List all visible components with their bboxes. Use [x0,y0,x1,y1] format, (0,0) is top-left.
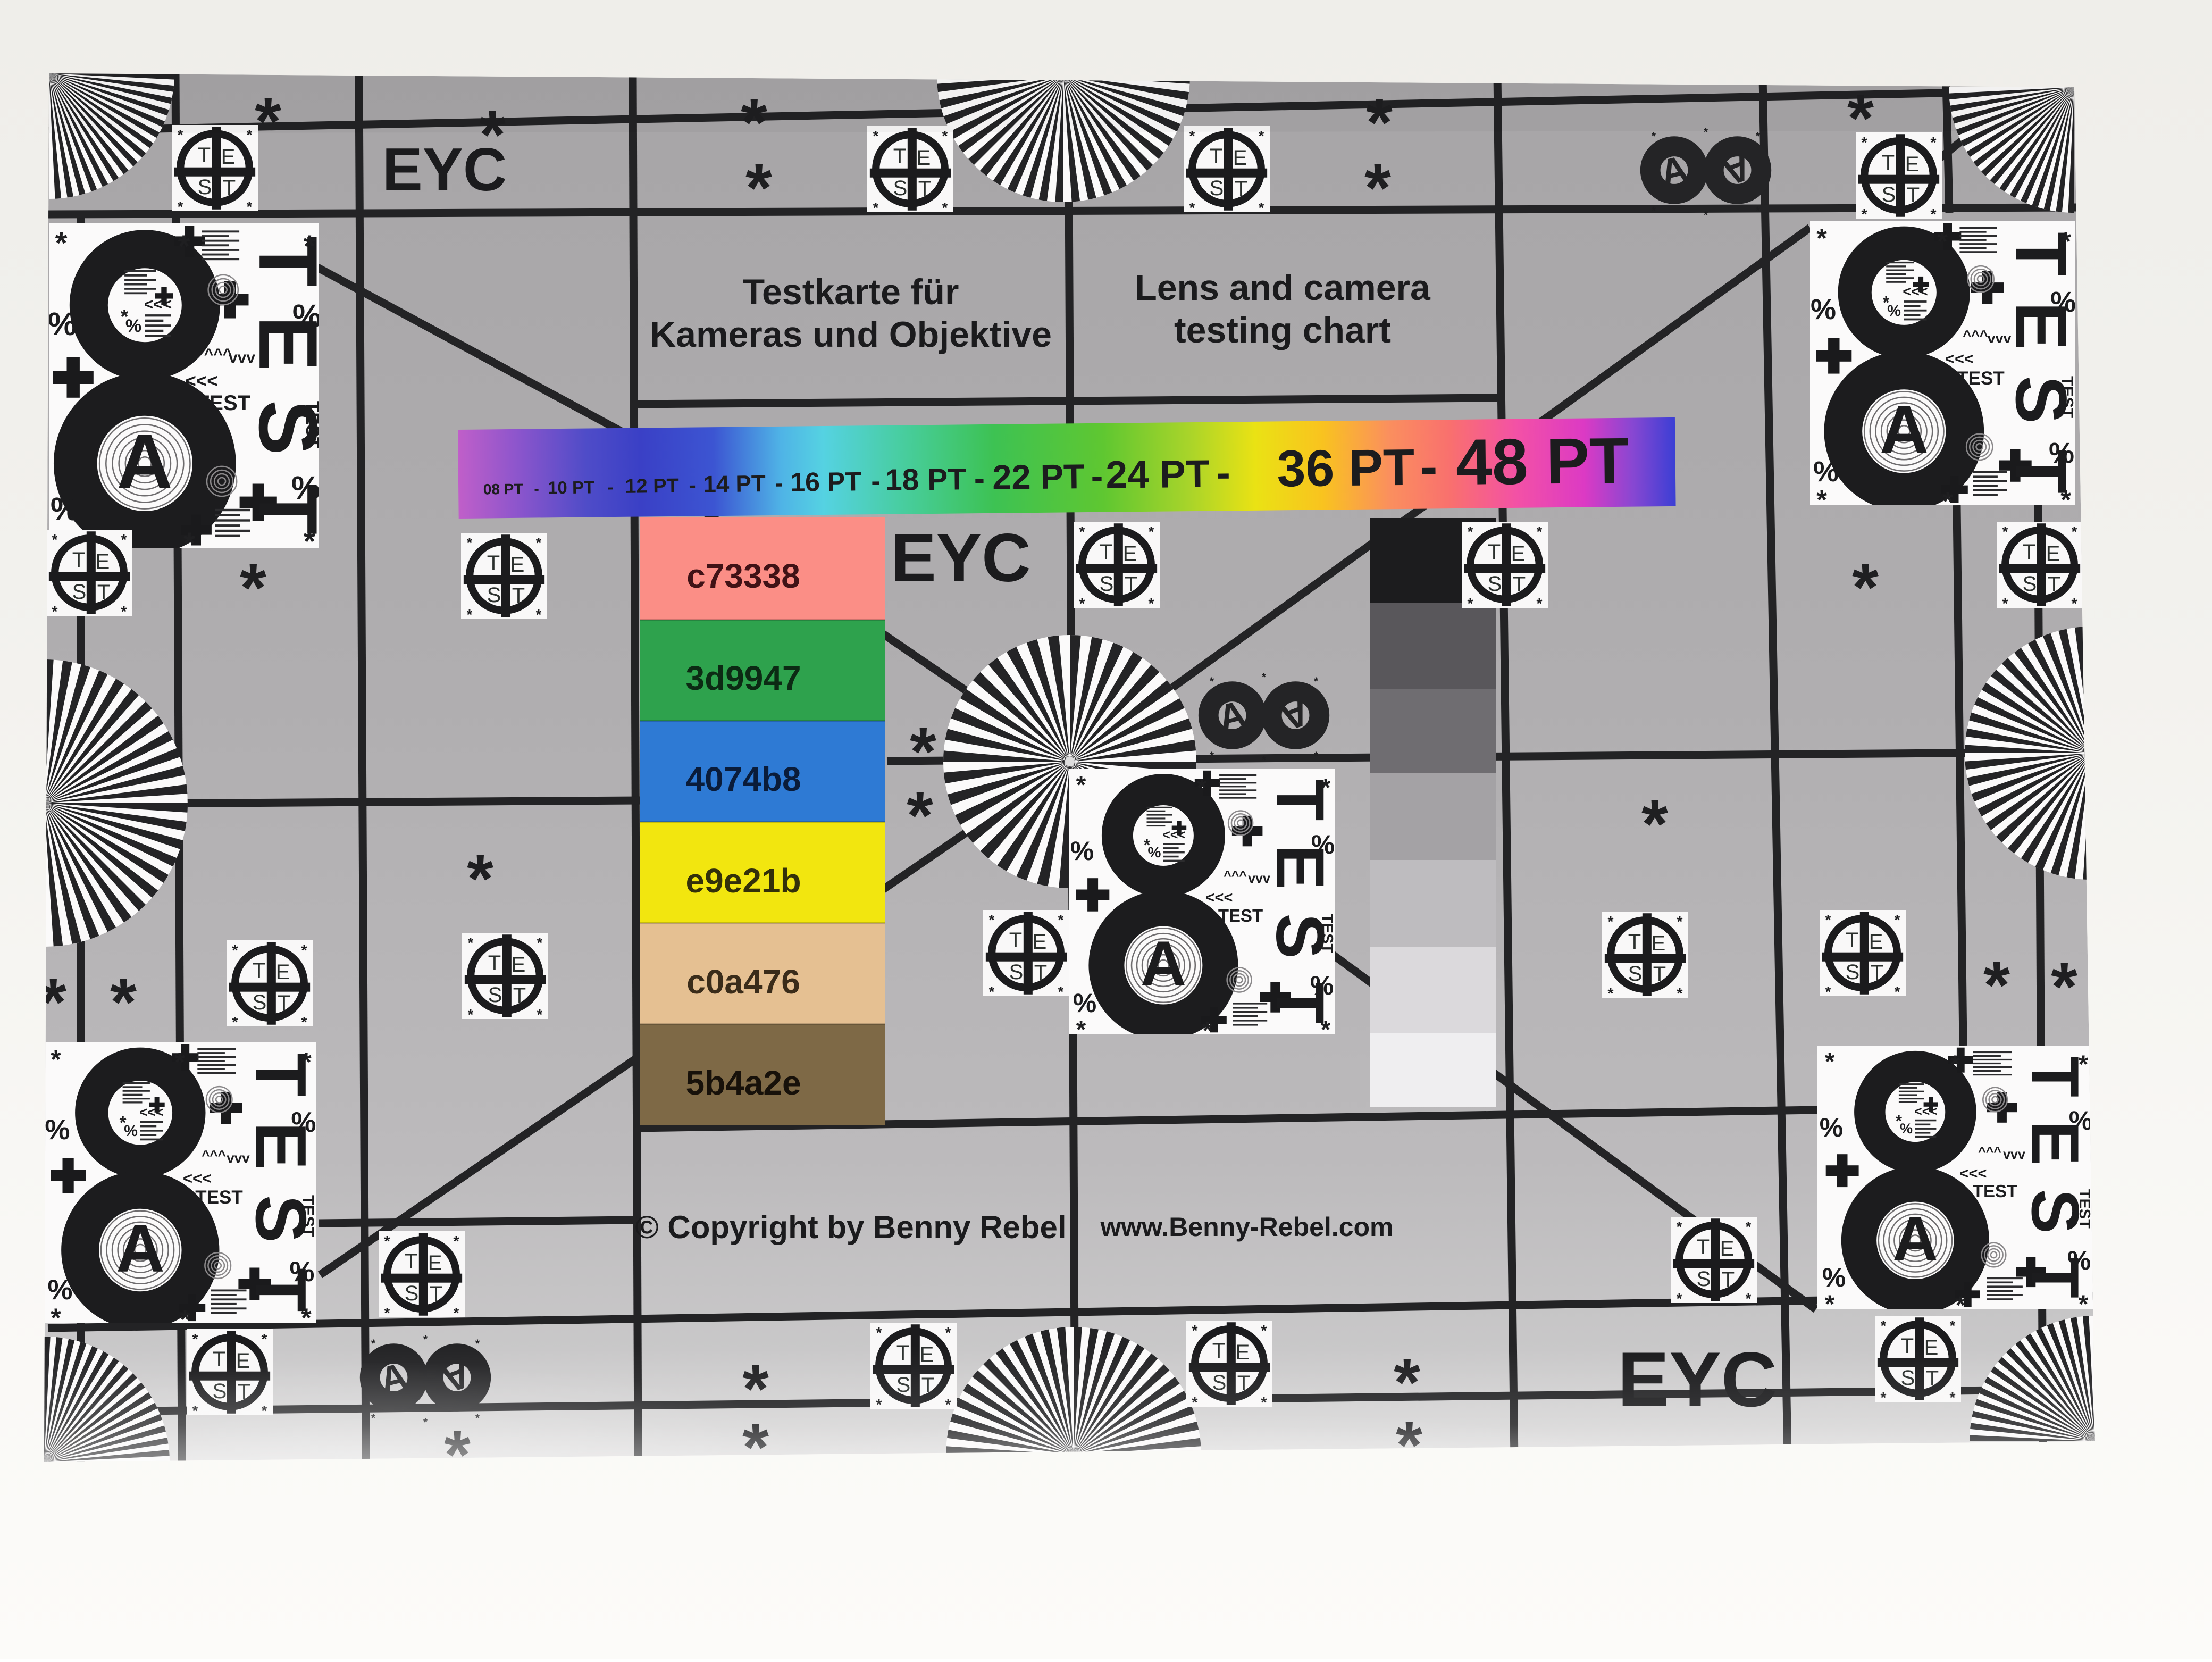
svg-text:*: * [1746,1218,1752,1235]
svg-text:%: % [291,470,320,506]
svg-text:%: % [124,1123,138,1140]
svg-text:S: S [1882,183,1896,206]
svg-text:*: * [1862,206,1867,222]
svg-text:*: * [1262,754,1267,766]
svg-text:*: * [2002,595,2008,612]
svg-text:*: * [1314,675,1319,688]
svg-text:-: - [871,466,881,497]
svg-text:*: * [945,1324,951,1341]
svg-text:S: S [893,177,908,200]
svg-text:*: * [1825,1047,1835,1075]
svg-text:*: * [1149,523,1154,540]
svg-text:E: E [1652,932,1666,955]
svg-text:*: * [1149,595,1154,612]
svg-text:T: T [1034,961,1047,984]
svg-text:*: * [467,534,473,551]
svg-text:*: * [1608,985,1614,1001]
svg-text:10 PT: 10 PT [548,477,594,497]
svg-text:-: - [1091,456,1103,496]
svg-text:*: * [1816,223,1827,253]
svg-text:%: % [2067,1246,2091,1275]
svg-text:*: * [454,1305,459,1321]
svg-text:*: * [174,1047,185,1077]
svg-text:*: * [1537,595,1543,612]
svg-text:© Copyright by Benny Rebel: © Copyright by Benny Rebel [635,1209,1067,1245]
svg-text:12 PT: 12 PT [625,475,679,498]
svg-text:A: A [1141,928,1187,999]
svg-text:*: * [1746,1290,1752,1307]
svg-text:S: S [1488,572,1502,596]
svg-text:%: % [289,1256,314,1288]
svg-text:^^^: ^^^ [202,1147,226,1163]
svg-text:<<<: <<< [1206,889,1233,906]
svg-text:-: - [974,461,985,496]
svg-text:*: * [240,550,266,626]
svg-text:*: * [121,603,127,620]
svg-text:T: T [512,584,525,607]
svg-text:A: A [116,418,172,505]
svg-text:36 PT: 36 PT [1277,438,1415,498]
svg-text:%: % [48,306,77,342]
svg-text:*: * [55,226,68,261]
svg-text:*: * [247,198,253,215]
svg-text:TEST: TEST [1319,914,1336,953]
svg-text:*: * [989,912,995,928]
svg-text:*: * [1937,226,1948,256]
svg-text:T: T [278,991,290,1015]
svg-text:%: % [1811,294,1836,325]
svg-text:E: E [1033,930,1047,954]
svg-text:*: * [1756,130,1761,143]
svg-text:*: * [1895,912,1900,928]
svg-text:*: * [51,1045,61,1074]
svg-text:%: % [1070,836,1094,866]
svg-text:14 PT: 14 PT [703,471,766,497]
svg-text:*: * [232,1014,238,1030]
svg-text:vvv: vvv [1248,871,1270,886]
svg-text:*: * [1079,523,1085,540]
svg-text:S: S [1697,1267,1711,1291]
svg-text:*: * [301,1014,307,1030]
svg-text:T: T [918,177,931,201]
svg-text:TEST: TEST [2076,1189,2093,1229]
svg-text:E: E [1233,146,1247,170]
svg-text:*: * [1756,205,1761,217]
svg-text:*: * [745,150,772,226]
svg-text:4074b8: 4074b8 [685,760,801,798]
svg-text:TEST: TEST [1957,368,2004,389]
svg-text:*: * [110,964,137,1040]
svg-text:^^^: ^^^ [204,346,232,363]
svg-text:*: * [989,983,995,1000]
svg-text:*: * [1881,1317,1887,1334]
svg-text:*: * [1825,983,1831,1000]
svg-text:*: * [52,531,58,548]
svg-text:TEST: TEST [299,1195,317,1237]
svg-text:E: E [512,953,526,976]
svg-text:*: * [467,841,493,917]
svg-text:A: A [116,1210,165,1286]
svg-text:*: * [192,1331,198,1347]
svg-text:vvv: vvv [1987,330,2011,346]
svg-text:*: * [423,1333,428,1346]
svg-text:T: T [1722,1268,1735,1291]
svg-text:%: % [47,1274,72,1306]
svg-text:*: * [301,1047,312,1077]
svg-text:TEST: TEST [1973,1181,2017,1201]
svg-text:A: A [1892,1204,1938,1274]
svg-text:S: S [72,580,87,604]
svg-text:%: % [1073,988,1096,1018]
svg-text:*: * [1652,205,1656,217]
svg-text:c73338: c73338 [686,557,800,595]
svg-text:*: * [537,934,543,951]
svg-text:TEST: TEST [1218,906,1263,925]
svg-text:E: E [2046,542,2060,565]
svg-text:^^^: ^^^ [1224,868,1247,883]
svg-text:*: * [178,198,183,215]
svg-text:*: * [942,199,948,216]
svg-text:*: * [536,606,542,623]
svg-text:E: E [1720,1237,1735,1260]
svg-text:*: * [1950,1050,1960,1078]
svg-text:*: * [1364,150,1391,226]
svg-text:T: T [1488,540,1501,564]
svg-text:*: * [1677,1290,1682,1307]
svg-text:*: * [873,199,879,216]
svg-text:<<<: <<< [183,1169,212,1188]
svg-text:<<<: <<< [1945,349,1974,368]
svg-text:T: T [488,951,501,975]
svg-text:*: * [2002,523,2008,540]
svg-text:*: * [301,942,307,958]
svg-text:-: - [534,480,539,497]
svg-text:%: % [1311,830,1335,859]
svg-text:Lens and camera: Lens and camera [1135,268,1431,308]
svg-text:18 PT: 18 PT [885,462,967,497]
svg-text:*: * [1704,209,1708,221]
svg-text:3d9947: 3d9947 [685,659,801,697]
svg-text:*: * [384,1233,390,1249]
svg-text:%: % [51,491,79,527]
svg-text:*: * [1825,912,1831,928]
svg-text:*: * [1852,549,1879,625]
svg-text:T: T [1846,929,1858,952]
svg-text:T: T [2023,540,2035,564]
svg-text:T: T [487,552,500,575]
svg-text:<<<: <<< [185,371,217,391]
svg-text:*: * [907,778,933,854]
svg-text:48 PT: 48 PT [1455,424,1629,498]
svg-text:%: % [1148,844,1161,861]
svg-text:*: * [1192,1322,1198,1339]
svg-text:*: * [1079,595,1085,612]
svg-text:T: T [1628,930,1641,954]
svg-text:%: % [1820,1113,1843,1142]
svg-text:T: T [1125,573,1137,596]
svg-text:*: * [1262,671,1267,683]
svg-text:%: % [1900,1121,1913,1137]
svg-text:vvv: vvv [2003,1147,2025,1162]
svg-text:*: * [1931,134,1937,151]
svg-text:S: S [1628,962,1643,985]
svg-text:*: * [876,1324,882,1341]
svg-text:TEST: TEST [196,391,250,415]
svg-text:%: % [125,316,141,336]
svg-text:S: S [1846,961,1860,984]
svg-text:T: T [1210,145,1222,168]
svg-text:c0a476: c0a476 [686,963,800,1001]
svg-text:%: % [2050,286,2076,318]
svg-text:%: % [1822,1263,1846,1292]
svg-text:*: * [384,1305,390,1321]
svg-text:S: S [2023,572,2037,596]
svg-text:T: T [1907,183,1920,207]
svg-text:*: * [1677,913,1683,930]
svg-text:T: T [1100,540,1112,564]
svg-text:*: * [1931,206,1937,222]
svg-text:*: * [536,534,542,551]
svg-text:T: T [1235,177,1247,201]
svg-text:T: T [1653,963,1666,986]
svg-text:*: * [2072,523,2077,540]
svg-text:Kameras und Objektive: Kameras und Objektive [650,314,1052,355]
svg-text:*: * [1261,1322,1267,1339]
svg-text:22 PT: 22 PT [992,457,1085,497]
svg-text:TEST: TEST [195,1187,242,1208]
svg-text:*: * [1468,595,1473,612]
svg-text:T: T [893,145,906,168]
svg-text:*: * [1677,985,1683,1001]
svg-text:e9e21b: e9e21b [685,862,801,900]
svg-text:E: E [1511,542,1526,565]
svg-text:*: * [121,531,127,548]
svg-text:*: * [1321,774,1331,802]
svg-text:%: % [1887,303,1901,320]
svg-text:S: S [1100,572,1114,596]
svg-text:-: - [1420,437,1438,496]
svg-text:T: T [1513,573,1526,596]
svg-text:-: - [775,469,783,497]
svg-text:%: % [1310,971,1334,1000]
svg-text:E: E [1123,542,1137,565]
svg-text:*: * [2072,595,2077,612]
svg-text:*: * [1677,1218,1682,1235]
svg-text:5b4a2e: 5b4a2e [685,1064,801,1102]
svg-text:TEST: TEST [2058,376,2077,418]
svg-text:*: * [1314,750,1319,762]
svg-text:T: T [405,1250,417,1273]
svg-text:T: T [1882,151,1895,174]
svg-text:-: - [607,477,613,497]
svg-text:*: * [1608,913,1614,930]
svg-text:*: * [1895,983,1900,1000]
svg-text:E: E [1869,930,1883,954]
svg-text:*: * [454,1233,459,1249]
svg-text:T: T [97,581,110,604]
svg-text:%: % [2049,437,2074,469]
svg-text:E: E [96,550,110,573]
svg-text:*: * [1641,786,1668,862]
svg-text:S: S [253,991,267,1014]
svg-text:%: % [291,1107,316,1138]
svg-text:%: % [292,298,321,334]
svg-text:*: * [178,229,190,264]
svg-text:^^^: ^^^ [1963,328,1988,344]
svg-text:E: E [428,1251,442,1275]
svg-text:E: E [917,146,931,170]
svg-text:-: - [1216,449,1230,496]
svg-text:*: * [2060,226,2071,256]
svg-text:vvv: vvv [229,349,255,366]
svg-text:*: * [1259,199,1264,216]
svg-text:T: T [1871,961,1883,984]
svg-text:T: T [1009,929,1022,952]
svg-text:*: * [537,1006,543,1023]
svg-text:%: % [2069,1106,2092,1135]
svg-text:T: T [2048,573,2060,596]
svg-text:*: * [304,229,316,264]
svg-text:*: * [1468,523,1473,540]
svg-text:-: - [689,473,696,497]
svg-text:*: * [1076,771,1086,799]
svg-text:*: * [2051,949,2077,1025]
svg-text:%: % [1813,456,1839,488]
svg-text:A: A [1880,392,1929,468]
svg-text:S: S [487,583,501,607]
svg-text:T: T [513,984,526,1007]
svg-text:www.Benny-Rebel.com: www.Benny-Rebel.com [1100,1212,1393,1242]
svg-text:%: % [45,1114,70,1146]
svg-text:^^^: ^^^ [1978,1145,2001,1159]
svg-text:T: T [72,548,85,572]
svg-text:Testkarte für: Testkarte für [743,272,959,312]
svg-text:T: T [198,144,211,167]
svg-text:*: * [1210,675,1214,688]
svg-text:testing chart: testing chart [1174,310,1391,350]
svg-text:24 PT: 24 PT [1105,453,1210,497]
svg-text:S: S [1009,961,1024,984]
svg-text:<<<: <<< [1960,1165,1987,1182]
svg-text:*: * [1983,947,2010,1023]
svg-text:*: * [262,1331,267,1347]
svg-text:*: * [1537,523,1543,540]
svg-text:E: E [510,553,525,577]
svg-text:*: * [1197,774,1207,802]
svg-text:T: T [1697,1235,1710,1259]
svg-text:E: E [221,145,236,169]
svg-text:S: S [1210,177,1224,200]
svg-text:E: E [1905,153,1920,176]
svg-text:*: * [52,603,58,620]
svg-text:*: * [468,934,474,951]
svg-text:16 PT: 16 PT [790,466,861,497]
svg-text:S: S [198,176,212,199]
svg-text:*: * [232,942,238,958]
svg-text:T: T [223,176,236,199]
svg-text:T: T [430,1282,442,1306]
svg-text:E: E [276,961,290,984]
svg-text:S: S [405,1282,419,1305]
svg-text:vvv: vvv [227,1150,250,1166]
svg-text:*: * [1058,983,1064,1000]
svg-text:*: * [467,606,473,623]
svg-text:*: * [1950,1317,1956,1334]
svg-text:S: S [488,983,502,1007]
svg-text:08 PT: 08 PT [483,481,523,498]
svg-text:*: * [1652,130,1656,143]
svg-text:*: * [2079,1050,2089,1078]
svg-text:EYC: EYC [891,520,1030,596]
svg-text:*: * [1189,199,1195,216]
svg-text:*: * [1210,750,1214,762]
svg-text:*: * [1058,912,1064,928]
svg-text:*: * [468,1006,474,1023]
svg-text:T: T [253,959,265,982]
